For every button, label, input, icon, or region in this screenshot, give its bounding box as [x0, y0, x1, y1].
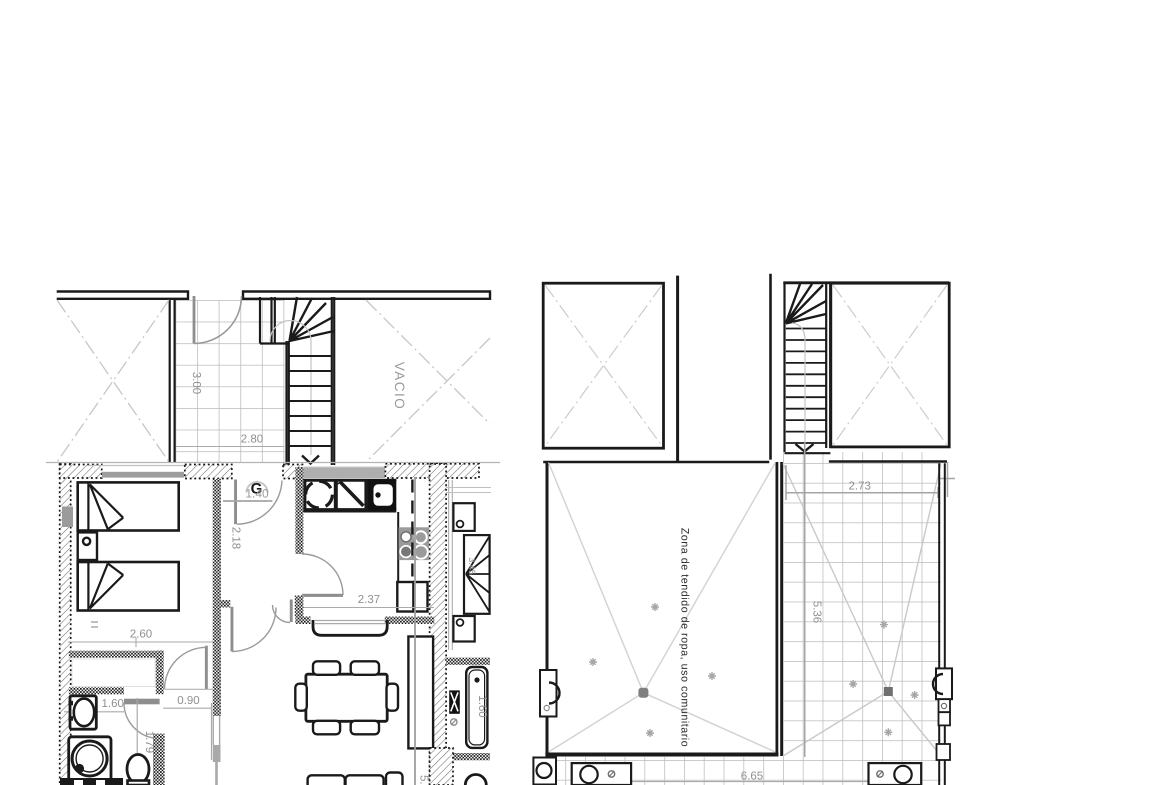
svg-text:2.80: 2.80: [241, 434, 263, 446]
svg-text:2.60: 2.60: [130, 629, 152, 641]
svg-text:5.36: 5.36: [811, 601, 823, 623]
svg-text:1.40: 1.40: [245, 487, 269, 501]
svg-text:3.45: 3.45: [467, 557, 477, 575]
svg-text:0.90: 0.90: [177, 695, 199, 707]
svg-text:2.37: 2.37: [358, 594, 380, 606]
svg-text:1.60: 1.60: [476, 695, 488, 717]
svg-text:6.65: 6.65: [741, 771, 763, 783]
svg-text:Zona de tendido de ropa, uso c: Zona de tendido de ropa, uso comunitario: [679, 528, 691, 747]
svg-text:5.3: 5.3: [418, 775, 430, 785]
svg-text:3.00: 3.00: [190, 372, 202, 394]
svg-text:2.73: 2.73: [849, 481, 871, 493]
svg-text:2.18: 2.18: [230, 527, 242, 549]
svg-text:1.60: 1.60: [102, 698, 124, 710]
svg-text:VACIO: VACIO: [392, 362, 407, 411]
